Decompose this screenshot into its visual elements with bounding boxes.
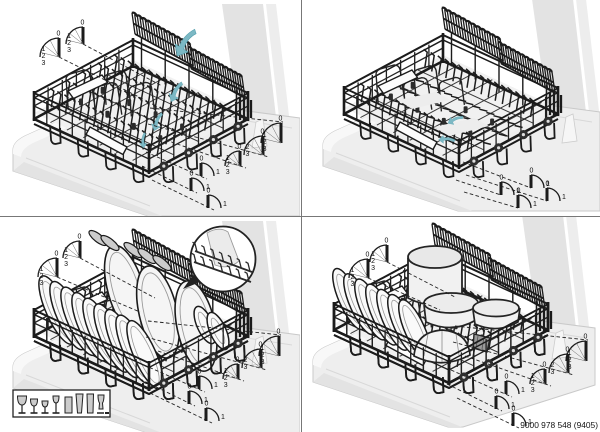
svg-text:1: 1 <box>223 201 227 208</box>
svg-text:0: 0 <box>584 334 588 341</box>
svg-text:0: 0 <box>198 369 202 376</box>
svg-text:1: 1 <box>216 169 220 176</box>
svg-text:0: 0 <box>236 357 240 364</box>
svg-text:2: 2 <box>64 254 68 261</box>
svg-text:2: 2 <box>245 144 249 151</box>
svg-text:3: 3 <box>226 169 230 176</box>
svg-text:2: 2 <box>243 357 247 364</box>
svg-text:0: 0 <box>543 362 547 369</box>
svg-text:1: 1 <box>41 46 45 53</box>
svg-text:3: 3 <box>39 280 43 287</box>
svg-text:3: 3 <box>64 261 68 268</box>
svg-text:0: 0 <box>55 251 59 258</box>
svg-text:3: 3 <box>243 364 247 371</box>
svg-text:1: 1 <box>39 266 43 273</box>
svg-text:9000 978 548 (9405): 9000 978 548 (9405) <box>520 420 598 430</box>
svg-text:2: 2 <box>41 53 45 60</box>
svg-text:3: 3 <box>41 60 45 67</box>
svg-text:1: 1 <box>562 194 566 201</box>
svg-text:0: 0 <box>190 171 194 178</box>
svg-text:0: 0 <box>188 384 192 391</box>
svg-text:3: 3 <box>245 151 249 158</box>
svg-text:3: 3 <box>350 281 354 288</box>
svg-text:2: 2 <box>350 274 354 281</box>
svg-text:0: 0 <box>517 188 521 195</box>
svg-text:1: 1 <box>224 368 228 375</box>
svg-text:2: 2 <box>531 380 535 387</box>
svg-text:1: 1 <box>214 382 218 389</box>
svg-text:0: 0 <box>505 374 509 381</box>
svg-text:3: 3 <box>550 369 554 376</box>
svg-text:1: 1 <box>371 251 375 258</box>
svg-text:1: 1 <box>533 201 537 208</box>
svg-text:3: 3 <box>371 265 375 272</box>
svg-text:2: 2 <box>550 362 554 369</box>
svg-text:2: 2 <box>371 258 375 265</box>
svg-text:0: 0 <box>279 116 283 123</box>
svg-text:1: 1 <box>521 387 525 394</box>
svg-text:0: 0 <box>78 234 82 241</box>
svg-text:1: 1 <box>226 155 230 162</box>
svg-text:0: 0 <box>385 238 389 245</box>
svg-text:0: 0 <box>261 129 265 136</box>
svg-text:0: 0 <box>57 31 61 38</box>
svg-text:0: 0 <box>200 156 204 163</box>
svg-text:0: 0 <box>205 401 209 408</box>
svg-text:0: 0 <box>238 144 242 151</box>
svg-text:0: 0 <box>259 342 263 349</box>
svg-text:0: 0 <box>207 188 211 195</box>
svg-text:1: 1 <box>350 267 354 274</box>
svg-text:0: 0 <box>495 389 499 396</box>
svg-text:0: 0 <box>530 168 534 175</box>
svg-text:3: 3 <box>531 387 535 394</box>
svg-text:0: 0 <box>500 175 504 182</box>
svg-text:0: 0 <box>277 329 281 336</box>
svg-text:2: 2 <box>224 375 228 382</box>
svg-text:3: 3 <box>224 382 228 389</box>
svg-text:0: 0 <box>81 20 85 27</box>
svg-text:0: 0 <box>546 181 550 188</box>
svg-text:1: 1 <box>67 33 71 40</box>
svg-text:0: 0 <box>566 347 570 354</box>
svg-text:1: 1 <box>221 414 225 421</box>
svg-text:0: 0 <box>512 406 516 413</box>
svg-text:2: 2 <box>39 273 43 280</box>
svg-text:2: 2 <box>67 40 71 47</box>
svg-text:2: 2 <box>226 162 230 169</box>
svg-text:1: 1 <box>64 247 68 254</box>
svg-text:3: 3 <box>67 47 71 54</box>
svg-text:0: 0 <box>366 252 370 259</box>
svg-text:1: 1 <box>531 373 535 380</box>
